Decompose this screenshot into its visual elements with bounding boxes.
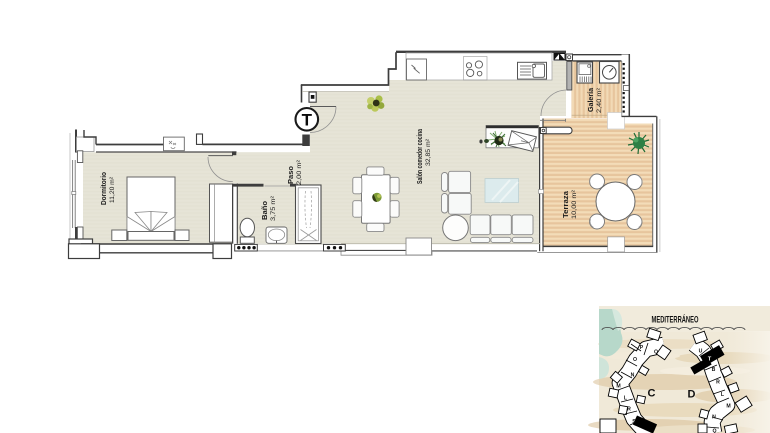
svg-text:N: N	[631, 373, 635, 379]
svg-text:B: B	[712, 367, 716, 373]
svg-text:R: R	[627, 407, 631, 413]
svg-text:S: S	[632, 419, 636, 425]
svg-text:Dormitorio: Dormitorio	[99, 171, 108, 205]
svg-text:P: P	[640, 345, 644, 351]
svg-text:Q: Q	[654, 350, 658, 356]
svg-text:Salón comedor cocina: Salón comedor cocina	[415, 128, 424, 184]
svg-text:2,40 m²: 2,40 m²	[596, 87, 603, 113]
svg-text:N: N	[712, 415, 716, 421]
svg-text:O: O	[633, 357, 637, 363]
svg-text:D: D	[688, 389, 696, 401]
svg-text:Baño: Baño	[260, 200, 269, 220]
svg-text:11,20 m²: 11,20 m²	[109, 176, 116, 203]
svg-text:32,85 m²: 32,85 m²	[425, 138, 432, 166]
svg-text:3,75 m²: 3,75 m²	[270, 195, 277, 221]
svg-text:Terraza: Terraza	[561, 190, 570, 218]
svg-text:MEDITERRÁNEO: MEDITERRÁNEO	[652, 315, 699, 325]
svg-text:M: M	[616, 384, 620, 390]
svg-text:T: T	[302, 111, 313, 130]
svg-text:Paso: Paso	[286, 165, 295, 184]
svg-text:R: R	[716, 380, 720, 386]
svg-text:C: C	[648, 388, 656, 400]
svg-text:2,00 m²: 2,00 m²	[296, 159, 303, 185]
svg-text:10,00 m²: 10,00 m²	[571, 189, 578, 219]
svg-text:Q: Q	[712, 429, 716, 433]
svg-text:Galería: Galería	[586, 87, 595, 112]
svg-text:U: U	[699, 349, 703, 355]
svg-text:M: M	[726, 404, 730, 410]
